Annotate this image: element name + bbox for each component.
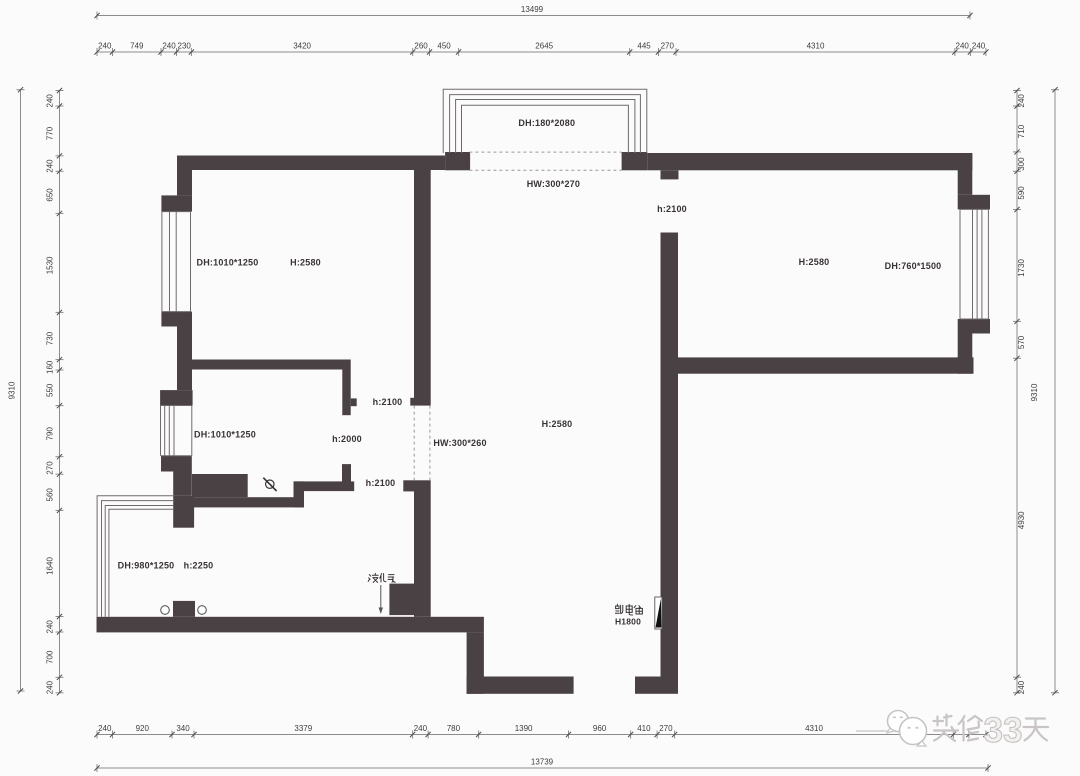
svg-text:9310: 9310 (8, 381, 17, 399)
svg-text:240: 240 (46, 94, 55, 108)
svg-text:240: 240 (972, 42, 986, 51)
svg-text:DH:760*1500: DH:760*1500 (885, 261, 942, 271)
svg-text:240: 240 (1017, 94, 1026, 108)
svg-text:h:2100: h:2100 (366, 478, 396, 488)
svg-text:770: 770 (46, 126, 55, 140)
svg-text:550: 550 (46, 383, 55, 397)
svg-text:710: 710 (1017, 124, 1026, 138)
svg-text:4930: 4930 (1017, 511, 1026, 529)
svg-text:240: 240 (1017, 680, 1026, 694)
svg-text:749: 749 (130, 42, 144, 51)
svg-text:3420: 3420 (293, 42, 311, 51)
svg-text:H:2580: H:2580 (799, 257, 830, 267)
svg-text:h:2250: h:2250 (184, 561, 214, 571)
svg-text:DH:980*1250: DH:980*1250 (118, 561, 175, 571)
svg-text:3379: 3379 (294, 724, 312, 733)
svg-text:H1800: H1800 (615, 617, 641, 627)
svg-text:240: 240 (46, 680, 55, 694)
svg-text:730: 730 (46, 331, 55, 345)
svg-text:4310: 4310 (805, 724, 823, 733)
svg-text:230: 230 (178, 42, 192, 51)
svg-text:790: 790 (46, 426, 55, 440)
svg-text:270: 270 (659, 724, 673, 733)
svg-text:1730: 1730 (1017, 259, 1026, 277)
svg-text:h:2100: h:2100 (373, 397, 403, 407)
svg-text:700: 700 (46, 650, 55, 664)
svg-text:9310: 9310 (1030, 383, 1039, 401)
svg-text:240: 240 (162, 42, 176, 51)
svg-text:h:2100: h:2100 (657, 204, 687, 214)
svg-text:HW:300*270: HW:300*270 (527, 179, 580, 189)
svg-text:DH:1010*1250: DH:1010*1250 (194, 430, 256, 440)
svg-text:260: 260 (414, 42, 428, 51)
svg-text:4310: 4310 (807, 42, 825, 51)
svg-text:H:2580: H:2580 (290, 258, 321, 268)
svg-text:270: 270 (46, 461, 55, 475)
svg-text:570: 570 (1017, 335, 1026, 349)
svg-text:H:2580: H:2580 (542, 419, 573, 429)
svg-text:300: 300 (1017, 157, 1026, 171)
svg-text:DH:180*2080: DH:180*2080 (518, 118, 575, 128)
svg-text:445: 445 (637, 42, 651, 51)
svg-text:920: 920 (136, 724, 150, 733)
svg-text:DH:1010*1250: DH:1010*1250 (197, 258, 259, 268)
svg-text:240: 240 (98, 724, 112, 733)
svg-text:450: 450 (437, 42, 451, 51)
svg-text:960: 960 (593, 724, 607, 733)
svg-text:13499: 13499 (521, 5, 544, 14)
svg-text:1390: 1390 (515, 724, 533, 733)
svg-text:13739: 13739 (531, 758, 554, 767)
svg-text:1640: 1640 (46, 557, 55, 575)
svg-text:240: 240 (956, 42, 970, 51)
svg-text:340: 340 (176, 724, 190, 733)
svg-text:270: 270 (661, 42, 675, 51)
svg-text:1530: 1530 (46, 256, 55, 274)
svg-text:2645: 2645 (535, 42, 553, 51)
svg-text:650: 650 (46, 188, 55, 202)
svg-text:160: 160 (46, 360, 55, 374)
svg-text:240: 240 (46, 159, 55, 173)
svg-text:590: 590 (1017, 186, 1026, 200)
svg-text:240: 240 (46, 620, 55, 634)
svg-text:HW:300*260: HW:300*260 (433, 438, 486, 448)
svg-text:780: 780 (447, 724, 461, 733)
svg-text:240: 240 (414, 724, 428, 733)
svg-text:410: 410 (637, 724, 651, 733)
svg-text:240: 240 (98, 42, 112, 51)
svg-text:h:2000: h:2000 (332, 434, 362, 444)
svg-text:560: 560 (46, 488, 55, 502)
svg-text:33: 33 (984, 711, 1023, 750)
